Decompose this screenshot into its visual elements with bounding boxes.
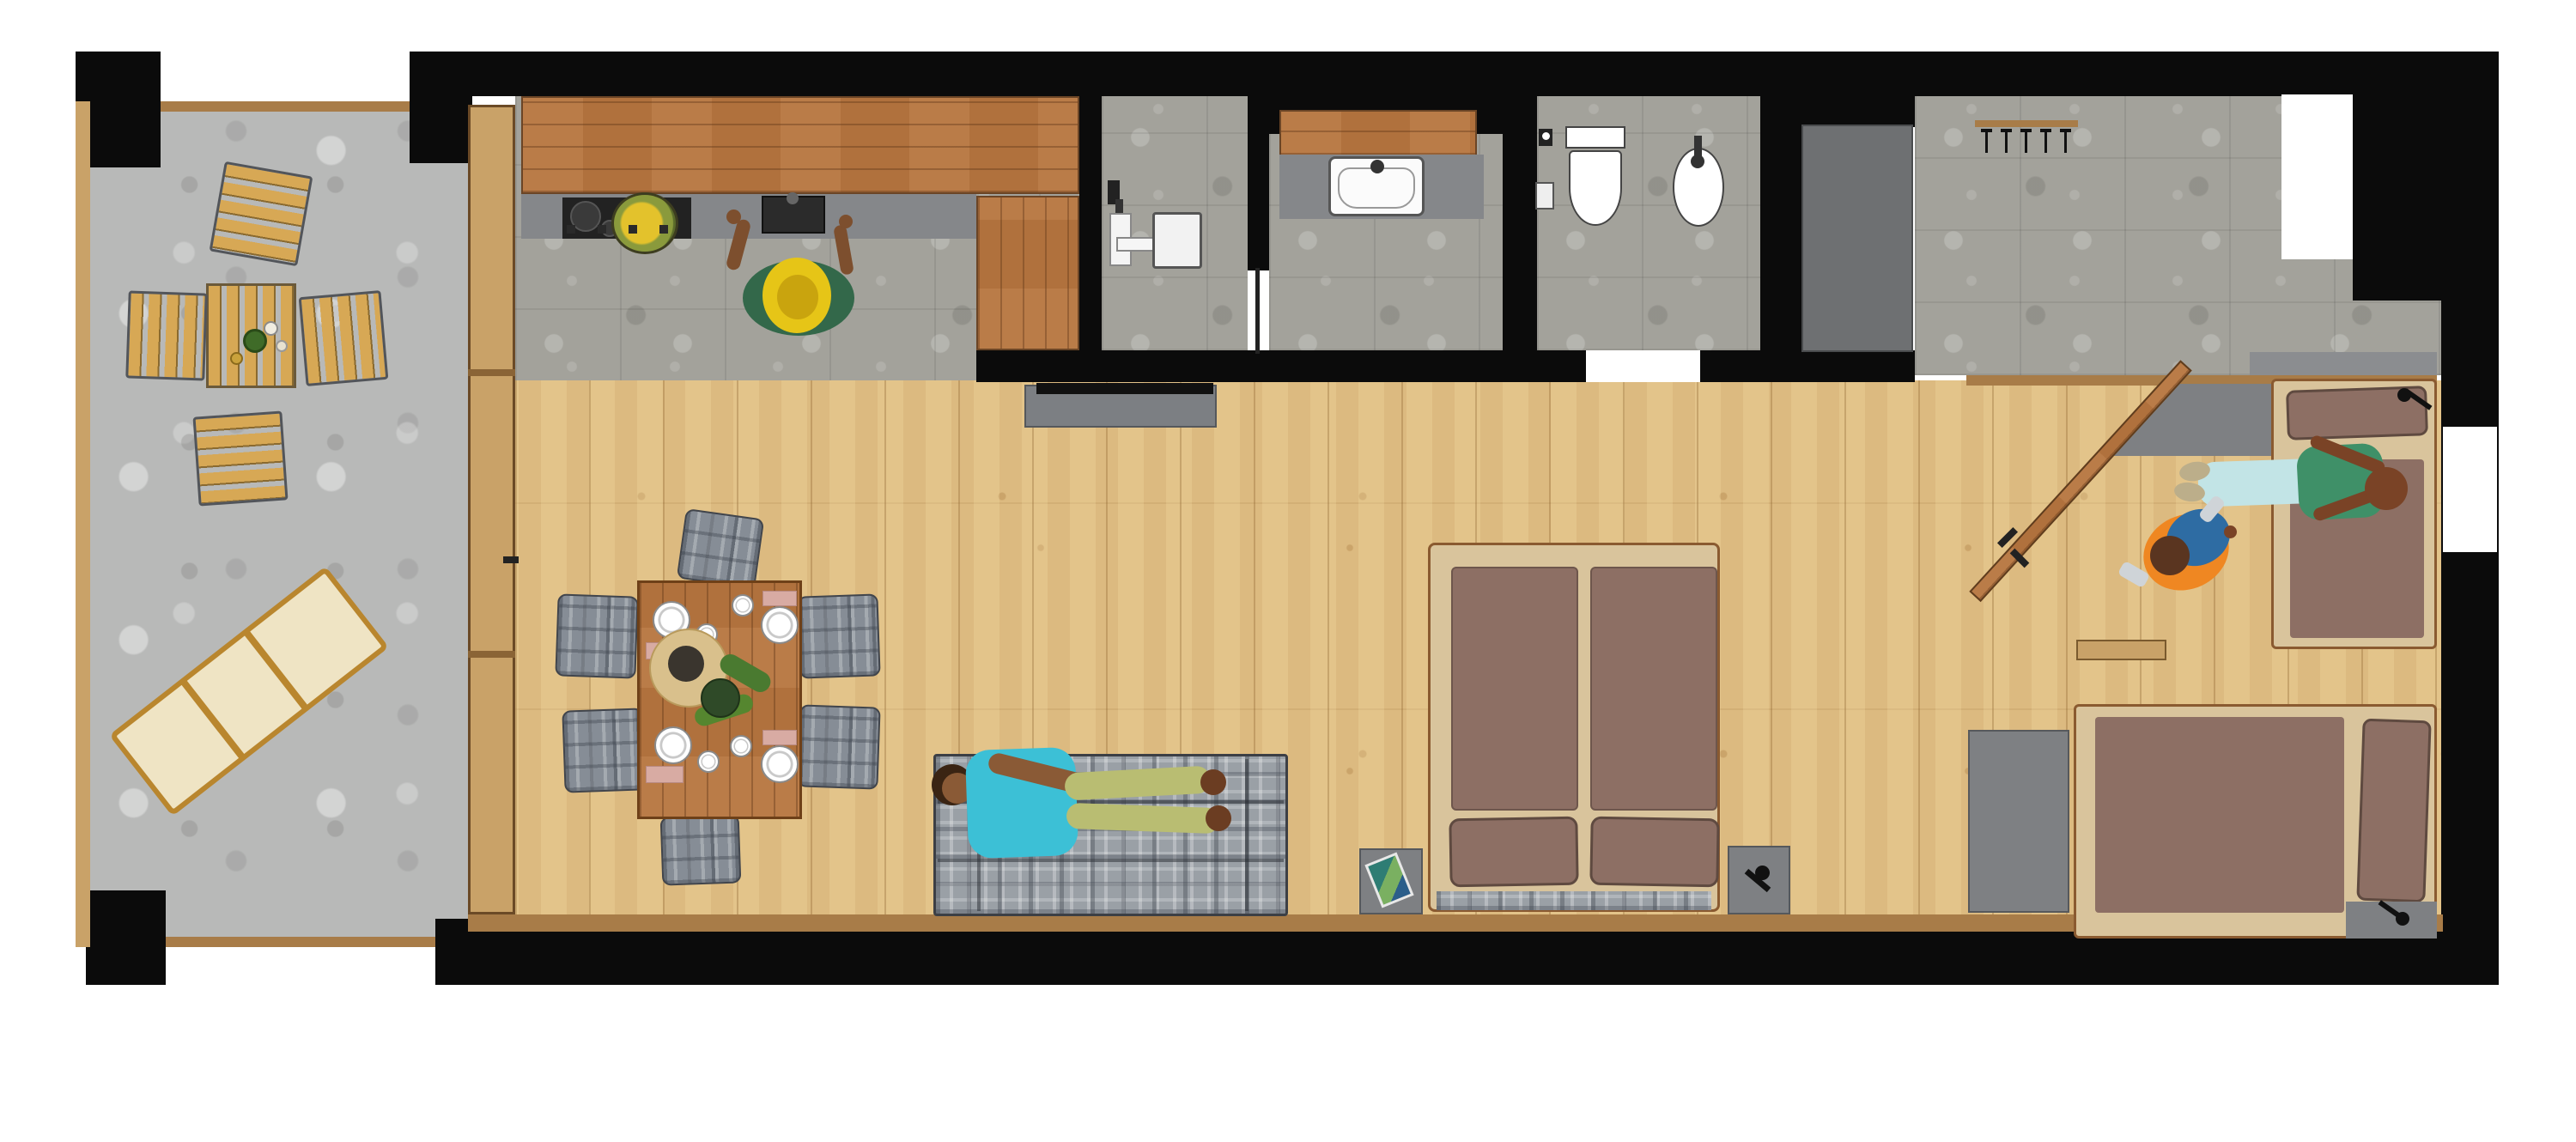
terrace-door-handle <box>503 556 519 563</box>
cooktop-knobs <box>567 225 678 234</box>
sofa-seat-line <box>938 859 1284 862</box>
coat-hook-stem-1 <box>1985 132 1988 153</box>
wall-bath-strip-bottom <box>976 350 1915 382</box>
wall-pillar-bottom-left <box>86 890 166 985</box>
apartment-floor-plan <box>0 0 2576 1142</box>
dining-chair-left-2 <box>562 708 645 793</box>
wall-bath-wc <box>1503 94 1537 352</box>
wall-pillar-top-right <box>410 52 472 163</box>
terrace-table-plant <box>243 329 267 353</box>
terrace-railing-left <box>76 101 90 947</box>
coat-hook-stem-4 <box>2044 132 2047 153</box>
person-sofa-foot-1 <box>1200 769 1226 795</box>
kitchen-cabinet-column <box>976 196 1079 350</box>
kids-bed-bottom-lamp <box>2396 912 2409 926</box>
herb-pot <box>701 678 740 718</box>
laundry-door-leaf <box>1255 268 1260 354</box>
person-kitchen-hand-left <box>726 210 741 224</box>
double-bed-pillow-right <box>1589 817 1719 888</box>
terrace-chair-top <box>210 161 313 266</box>
person-child-head <box>2150 536 2190 575</box>
kids-cabinet <box>1968 730 2069 913</box>
hall-wardrobe <box>1801 125 1913 352</box>
nightstand-lamp <box>1755 866 1770 880</box>
glazing-mullion-2 <box>468 651 515 658</box>
dining-chair-right-1 <box>797 593 880 678</box>
wall-top <box>468 52 2353 96</box>
person-child-hand <box>2224 525 2237 538</box>
terrace-cup-2 <box>276 340 288 352</box>
double-bed-duvet-right <box>1590 567 1717 811</box>
person-parent-head <box>2365 467 2408 510</box>
person-kitchen-hand-right <box>839 215 853 228</box>
window-right-opening <box>2443 427 2497 552</box>
napkin-3 <box>646 766 683 783</box>
terrace-cup-1 <box>264 321 278 336</box>
terrace-chair-right <box>299 290 389 386</box>
wall-laundry-right <box>1248 94 1269 270</box>
dining-chair-left-1 <box>555 593 638 678</box>
bidet-faucet-head <box>1691 155 1704 168</box>
side-plate-4 <box>730 735 752 757</box>
dining-chair-top <box>677 508 765 589</box>
toilet-bowl <box>1569 150 1622 226</box>
dining-chair-bottom <box>660 814 742 885</box>
kitchen-counter-top <box>521 96 1079 194</box>
wall-right <box>2441 301 2499 985</box>
wooden-step <box>2076 640 2166 660</box>
coat-hook-stem-2 <box>2005 132 2008 153</box>
laundry-table <box>1152 212 1202 269</box>
plate-3 <box>654 726 692 764</box>
person-kitchen-hair-swirl <box>777 275 818 319</box>
dining-chair-right-2 <box>797 704 880 789</box>
toilet-paper-holder <box>1535 182 1554 210</box>
wc-door-opening <box>1586 350 1700 382</box>
side-plate-3 <box>697 750 720 773</box>
glazing-mullion-1 <box>468 369 515 376</box>
pan-with-food <box>611 192 678 254</box>
tv-screen <box>1036 383 1213 394</box>
double-bed-duvet-left <box>1451 567 1578 811</box>
plate-4 <box>761 745 799 783</box>
terrace-railing-top <box>161 101 410 112</box>
washbasin-faucet <box>1370 160 1384 173</box>
wall-kitchen-right <box>1079 94 1102 382</box>
kids-bed-bottom-pillow <box>2356 719 2431 903</box>
napkin-4 <box>762 730 797 745</box>
entry-door-niche <box>2281 94 2353 259</box>
wc-corner-fixture-dot <box>1542 132 1550 140</box>
toilet-tank <box>1565 126 1625 149</box>
kids-bed-right-lamp <box>2397 388 2411 402</box>
bathroom-shelf <box>1279 110 1477 156</box>
centerpiece-bowl <box>668 646 704 682</box>
coat-hook-stem-5 <box>2064 132 2067 153</box>
washbasin-inner <box>1338 167 1415 209</box>
wall-above-wardrobe <box>1801 94 1915 127</box>
sofa-armrest-right <box>1245 759 1249 911</box>
terrace-chair-left <box>125 290 208 380</box>
plate-2 <box>761 606 799 644</box>
person-sofa-leg-2 <box>1066 803 1220 834</box>
double-bed-runner <box>1437 891 1711 910</box>
terrace-chair-bottom <box>192 410 288 506</box>
double-bed-pillow-left <box>1449 817 1578 888</box>
hall-doormat <box>2250 352 2437 375</box>
wall-corner-top-right <box>2353 52 2499 301</box>
hall-top-trim <box>1975 120 2078 127</box>
terrace-dish <box>230 352 243 365</box>
kids-bed-bottom-mattress <box>2095 717 2344 913</box>
coat-hook-stem-3 <box>2025 132 2027 153</box>
kitchen-sink-faucet <box>787 192 799 204</box>
side-plate-2 <box>732 594 754 617</box>
terrace-glazing-wall <box>468 105 515 914</box>
terrace-railing-bottom <box>166 937 435 947</box>
person-sofa-foot-2 <box>1206 805 1231 831</box>
wall-wc-right <box>1760 94 1801 352</box>
wall-bottom <box>455 932 2499 985</box>
napkin-2 <box>762 591 797 606</box>
